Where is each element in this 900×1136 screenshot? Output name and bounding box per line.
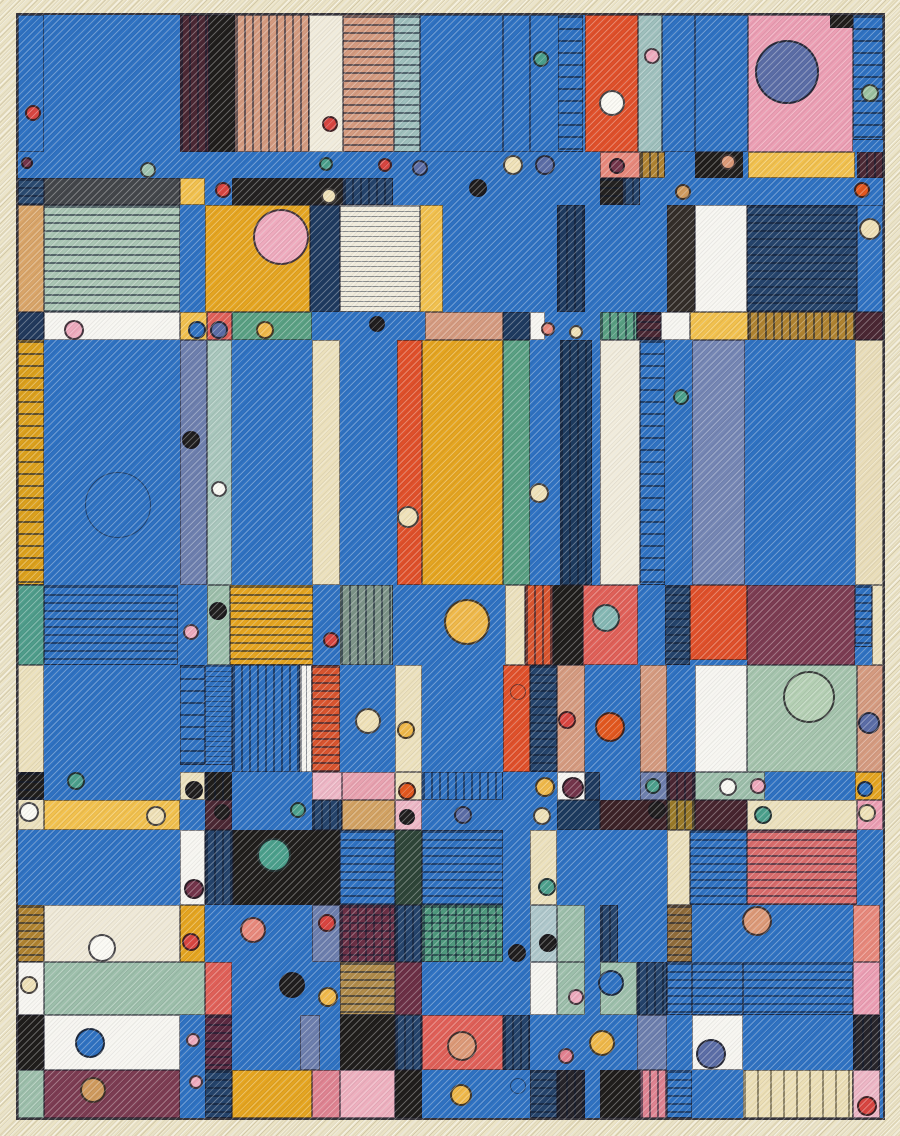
art-cell xyxy=(395,962,422,1015)
art-cell xyxy=(18,15,44,152)
art-circle xyxy=(503,155,523,175)
art-cell xyxy=(600,178,623,205)
art-circle xyxy=(88,934,116,962)
art-cell xyxy=(422,340,503,585)
art-circle xyxy=(211,481,227,497)
art-circle xyxy=(146,806,166,826)
art-circle xyxy=(20,976,38,994)
art-circle xyxy=(323,632,339,648)
art-cell xyxy=(692,340,745,585)
art-cell xyxy=(340,830,395,905)
art-cell xyxy=(695,665,747,772)
art-circle xyxy=(598,970,624,996)
art-circle xyxy=(539,934,557,952)
art-cell xyxy=(44,962,205,1015)
art-circle xyxy=(215,182,231,198)
art-cell xyxy=(853,1015,880,1070)
art-cell xyxy=(690,312,748,340)
art-cell xyxy=(343,178,393,205)
art-cell xyxy=(667,800,695,830)
art-cell xyxy=(312,665,340,772)
art-circle xyxy=(589,1030,615,1056)
art-circle xyxy=(648,801,666,819)
art-circle xyxy=(568,989,584,1005)
art-cell xyxy=(205,772,232,800)
art-circle xyxy=(185,781,203,799)
art-circle xyxy=(290,802,306,818)
art-cell xyxy=(667,905,692,962)
art-circle xyxy=(857,781,873,797)
art-cell xyxy=(340,905,395,962)
art-cell xyxy=(503,665,530,772)
art-cell xyxy=(425,312,503,340)
art-circle xyxy=(562,777,584,799)
art-circle xyxy=(444,599,490,645)
art-circle xyxy=(398,782,416,800)
art-cell xyxy=(857,152,883,178)
art-cell xyxy=(395,1015,422,1070)
art-circle xyxy=(538,878,556,896)
art-cell xyxy=(343,15,394,152)
art-cell xyxy=(207,585,230,665)
art-circle xyxy=(861,84,879,102)
art-cell xyxy=(692,962,743,1015)
art-cell xyxy=(395,905,422,962)
art-cell xyxy=(232,1070,312,1118)
art-cell xyxy=(340,585,393,665)
art-cell xyxy=(505,585,525,665)
art-circle xyxy=(64,320,84,340)
art-cell xyxy=(661,312,690,340)
art-cell xyxy=(667,1070,692,1118)
art-cell xyxy=(667,962,692,1015)
art-cell xyxy=(557,962,585,1015)
art-cell xyxy=(747,830,857,905)
art-cell xyxy=(209,15,235,152)
art-cell xyxy=(235,15,309,152)
art-cell xyxy=(18,1070,44,1118)
art-circle xyxy=(854,182,870,198)
art-cell xyxy=(637,962,667,1015)
art-outline-circle xyxy=(510,1078,526,1094)
art-circle xyxy=(321,188,337,204)
art-circle xyxy=(569,325,583,339)
art-circle xyxy=(279,972,305,998)
art-cell xyxy=(557,905,585,962)
art-cell xyxy=(640,1070,667,1118)
art-circle xyxy=(535,155,555,175)
art-cell xyxy=(640,665,667,772)
art-cell xyxy=(420,15,503,152)
art-circle xyxy=(19,802,39,822)
art-circle xyxy=(67,772,85,790)
art-circle xyxy=(535,777,555,797)
art-circle xyxy=(529,483,549,503)
art-cell xyxy=(205,665,232,765)
art-cell xyxy=(560,340,592,585)
art-circle xyxy=(750,778,766,794)
art-cell xyxy=(205,962,232,1015)
art-cell xyxy=(503,1015,530,1070)
art-cell xyxy=(667,205,695,312)
art-cell xyxy=(638,15,662,152)
art-cell xyxy=(747,205,857,312)
art-cell xyxy=(18,178,44,205)
art-cell xyxy=(855,340,883,585)
art-circle xyxy=(256,321,274,339)
art-cell xyxy=(18,205,44,312)
art-circle xyxy=(412,160,428,176)
art-cell xyxy=(553,585,583,665)
art-circle xyxy=(754,806,772,824)
art-cell xyxy=(18,340,44,585)
art-cell xyxy=(420,205,443,312)
art-cell xyxy=(44,205,180,312)
art-circle xyxy=(397,506,419,528)
art-cell xyxy=(855,312,883,340)
art-circle xyxy=(859,218,881,240)
art-cell xyxy=(695,152,743,178)
art-outline-circle xyxy=(510,684,526,700)
art-cell xyxy=(422,905,503,962)
art-cell xyxy=(342,800,395,830)
art-circle xyxy=(240,917,266,943)
art-circle xyxy=(214,804,230,820)
art-cell xyxy=(853,905,880,962)
art-circle xyxy=(447,1031,477,1061)
art-cell xyxy=(233,830,340,905)
art-cell xyxy=(397,340,422,585)
art-cell xyxy=(830,15,853,28)
art-cell xyxy=(180,15,209,152)
art-circle xyxy=(378,158,392,172)
art-circle xyxy=(182,933,200,951)
art-cell xyxy=(395,1070,422,1118)
art-cell xyxy=(853,962,880,1015)
art-cell xyxy=(18,772,44,800)
art-circle xyxy=(186,1033,200,1047)
art-cell xyxy=(557,1070,585,1118)
art-cell xyxy=(695,800,747,830)
art-cell xyxy=(422,772,503,800)
art-cell xyxy=(557,800,600,830)
art-circle xyxy=(599,90,625,116)
art-cell xyxy=(690,830,747,905)
art-cell xyxy=(312,1070,340,1118)
art-circle xyxy=(742,906,772,936)
art-circle xyxy=(533,807,551,825)
art-cell xyxy=(340,205,420,312)
art-circle xyxy=(140,162,156,178)
art-cell xyxy=(18,312,44,340)
art-cell xyxy=(312,800,342,830)
art-cell xyxy=(640,152,665,178)
art-cell xyxy=(232,665,300,772)
art-cell xyxy=(662,15,695,152)
art-cell xyxy=(230,585,313,665)
art-cell xyxy=(530,962,557,1015)
art-cell xyxy=(300,1015,320,1070)
art-circle xyxy=(533,51,549,67)
art-circle xyxy=(508,944,526,962)
art-cell xyxy=(205,1015,232,1070)
art-cell xyxy=(667,772,695,800)
art-circle xyxy=(644,48,660,64)
art-cell xyxy=(342,772,395,800)
art-circle xyxy=(720,154,736,170)
art-cell xyxy=(853,15,883,140)
art-cell xyxy=(207,340,232,585)
art-cell xyxy=(300,665,312,772)
art-circle xyxy=(21,157,33,169)
art-cell xyxy=(309,15,343,152)
art-cell xyxy=(665,585,690,665)
art-cell xyxy=(310,205,340,312)
art-cell xyxy=(395,830,422,905)
art-cell xyxy=(525,585,553,665)
art-circle xyxy=(209,602,227,620)
art-cell xyxy=(18,1015,44,1070)
art-cell xyxy=(44,1015,180,1070)
art-cell xyxy=(585,772,600,800)
art-circle xyxy=(399,809,415,825)
art-circle xyxy=(25,105,41,121)
art-circle xyxy=(454,806,472,824)
art-cell xyxy=(340,1070,395,1118)
art-cell xyxy=(743,962,853,1015)
art-circle xyxy=(558,711,576,729)
art-circle xyxy=(755,40,819,104)
art-cell xyxy=(180,665,205,765)
art-cell xyxy=(530,665,557,772)
art-cell xyxy=(530,1070,557,1118)
art-cell xyxy=(394,15,420,152)
art-cell xyxy=(503,340,530,585)
art-cell xyxy=(18,905,44,962)
art-cell xyxy=(640,340,665,585)
art-cell xyxy=(44,585,178,665)
art-circle xyxy=(609,158,625,174)
art-cell xyxy=(340,962,395,1015)
art-cell xyxy=(600,340,640,585)
art-circle xyxy=(189,1075,203,1089)
art-outline-circle xyxy=(85,472,151,538)
art-cell xyxy=(695,15,748,152)
art-cell xyxy=(312,340,340,585)
art-circle xyxy=(318,914,336,932)
textile-art-page: { "title": "abstract-woven-grid-composit… xyxy=(0,0,900,1136)
art-cell xyxy=(600,1070,640,1118)
art-cell xyxy=(695,205,747,312)
art-circle xyxy=(541,322,555,336)
art-circle xyxy=(469,179,487,197)
art-cell xyxy=(747,585,855,665)
art-cell xyxy=(623,178,640,205)
art-circle xyxy=(783,671,835,723)
art-cell xyxy=(340,1015,395,1070)
art-cell xyxy=(422,830,503,905)
art-cell xyxy=(503,312,530,340)
art-circle xyxy=(184,879,204,899)
art-cell xyxy=(44,178,180,205)
art-circle xyxy=(257,838,291,872)
art-cell xyxy=(180,340,207,585)
art-cell xyxy=(690,585,747,660)
art-cell xyxy=(600,905,618,962)
art-circle xyxy=(858,804,876,822)
art-cell xyxy=(558,15,583,152)
art-cell xyxy=(205,830,233,905)
art-cell xyxy=(748,152,855,178)
art-circle xyxy=(397,721,415,739)
art-cell xyxy=(637,312,661,340)
art-circle xyxy=(183,624,199,640)
art-cell xyxy=(585,15,638,152)
art-circle xyxy=(719,778,737,796)
art-circle xyxy=(355,708,381,734)
art-circle xyxy=(858,712,880,734)
art-cell xyxy=(44,1070,180,1118)
art-circle xyxy=(592,604,620,632)
art-circle xyxy=(319,157,333,171)
art-circle xyxy=(450,1084,472,1106)
art-circle xyxy=(673,389,689,405)
artwork-panel xyxy=(16,13,885,1120)
art-cell xyxy=(180,178,205,205)
art-cell xyxy=(530,905,557,962)
art-circle xyxy=(182,431,200,449)
art-cell xyxy=(637,1015,667,1070)
art-circle xyxy=(318,987,338,1007)
art-circle xyxy=(857,1096,877,1116)
art-cell xyxy=(600,312,637,340)
art-cell xyxy=(557,205,585,312)
art-circle xyxy=(75,1028,105,1058)
art-circle xyxy=(210,321,228,339)
art-circle xyxy=(369,316,385,332)
art-cell xyxy=(743,1070,853,1118)
art-cell xyxy=(855,585,872,647)
art-cell xyxy=(18,585,44,665)
art-cell xyxy=(748,312,855,340)
art-circle xyxy=(253,209,309,265)
art-circle xyxy=(188,321,206,339)
art-circle xyxy=(595,712,625,742)
art-cell xyxy=(205,1070,232,1118)
art-circle xyxy=(645,778,661,794)
art-cell xyxy=(503,15,530,152)
art-circle xyxy=(322,116,338,132)
art-cell xyxy=(395,665,422,772)
art-circle xyxy=(675,184,691,200)
art-cell xyxy=(312,772,342,800)
art-circle xyxy=(80,1077,106,1103)
art-circle xyxy=(696,1039,726,1069)
art-circle xyxy=(558,1048,574,1064)
art-cell xyxy=(872,585,883,665)
art-cell xyxy=(667,830,690,905)
